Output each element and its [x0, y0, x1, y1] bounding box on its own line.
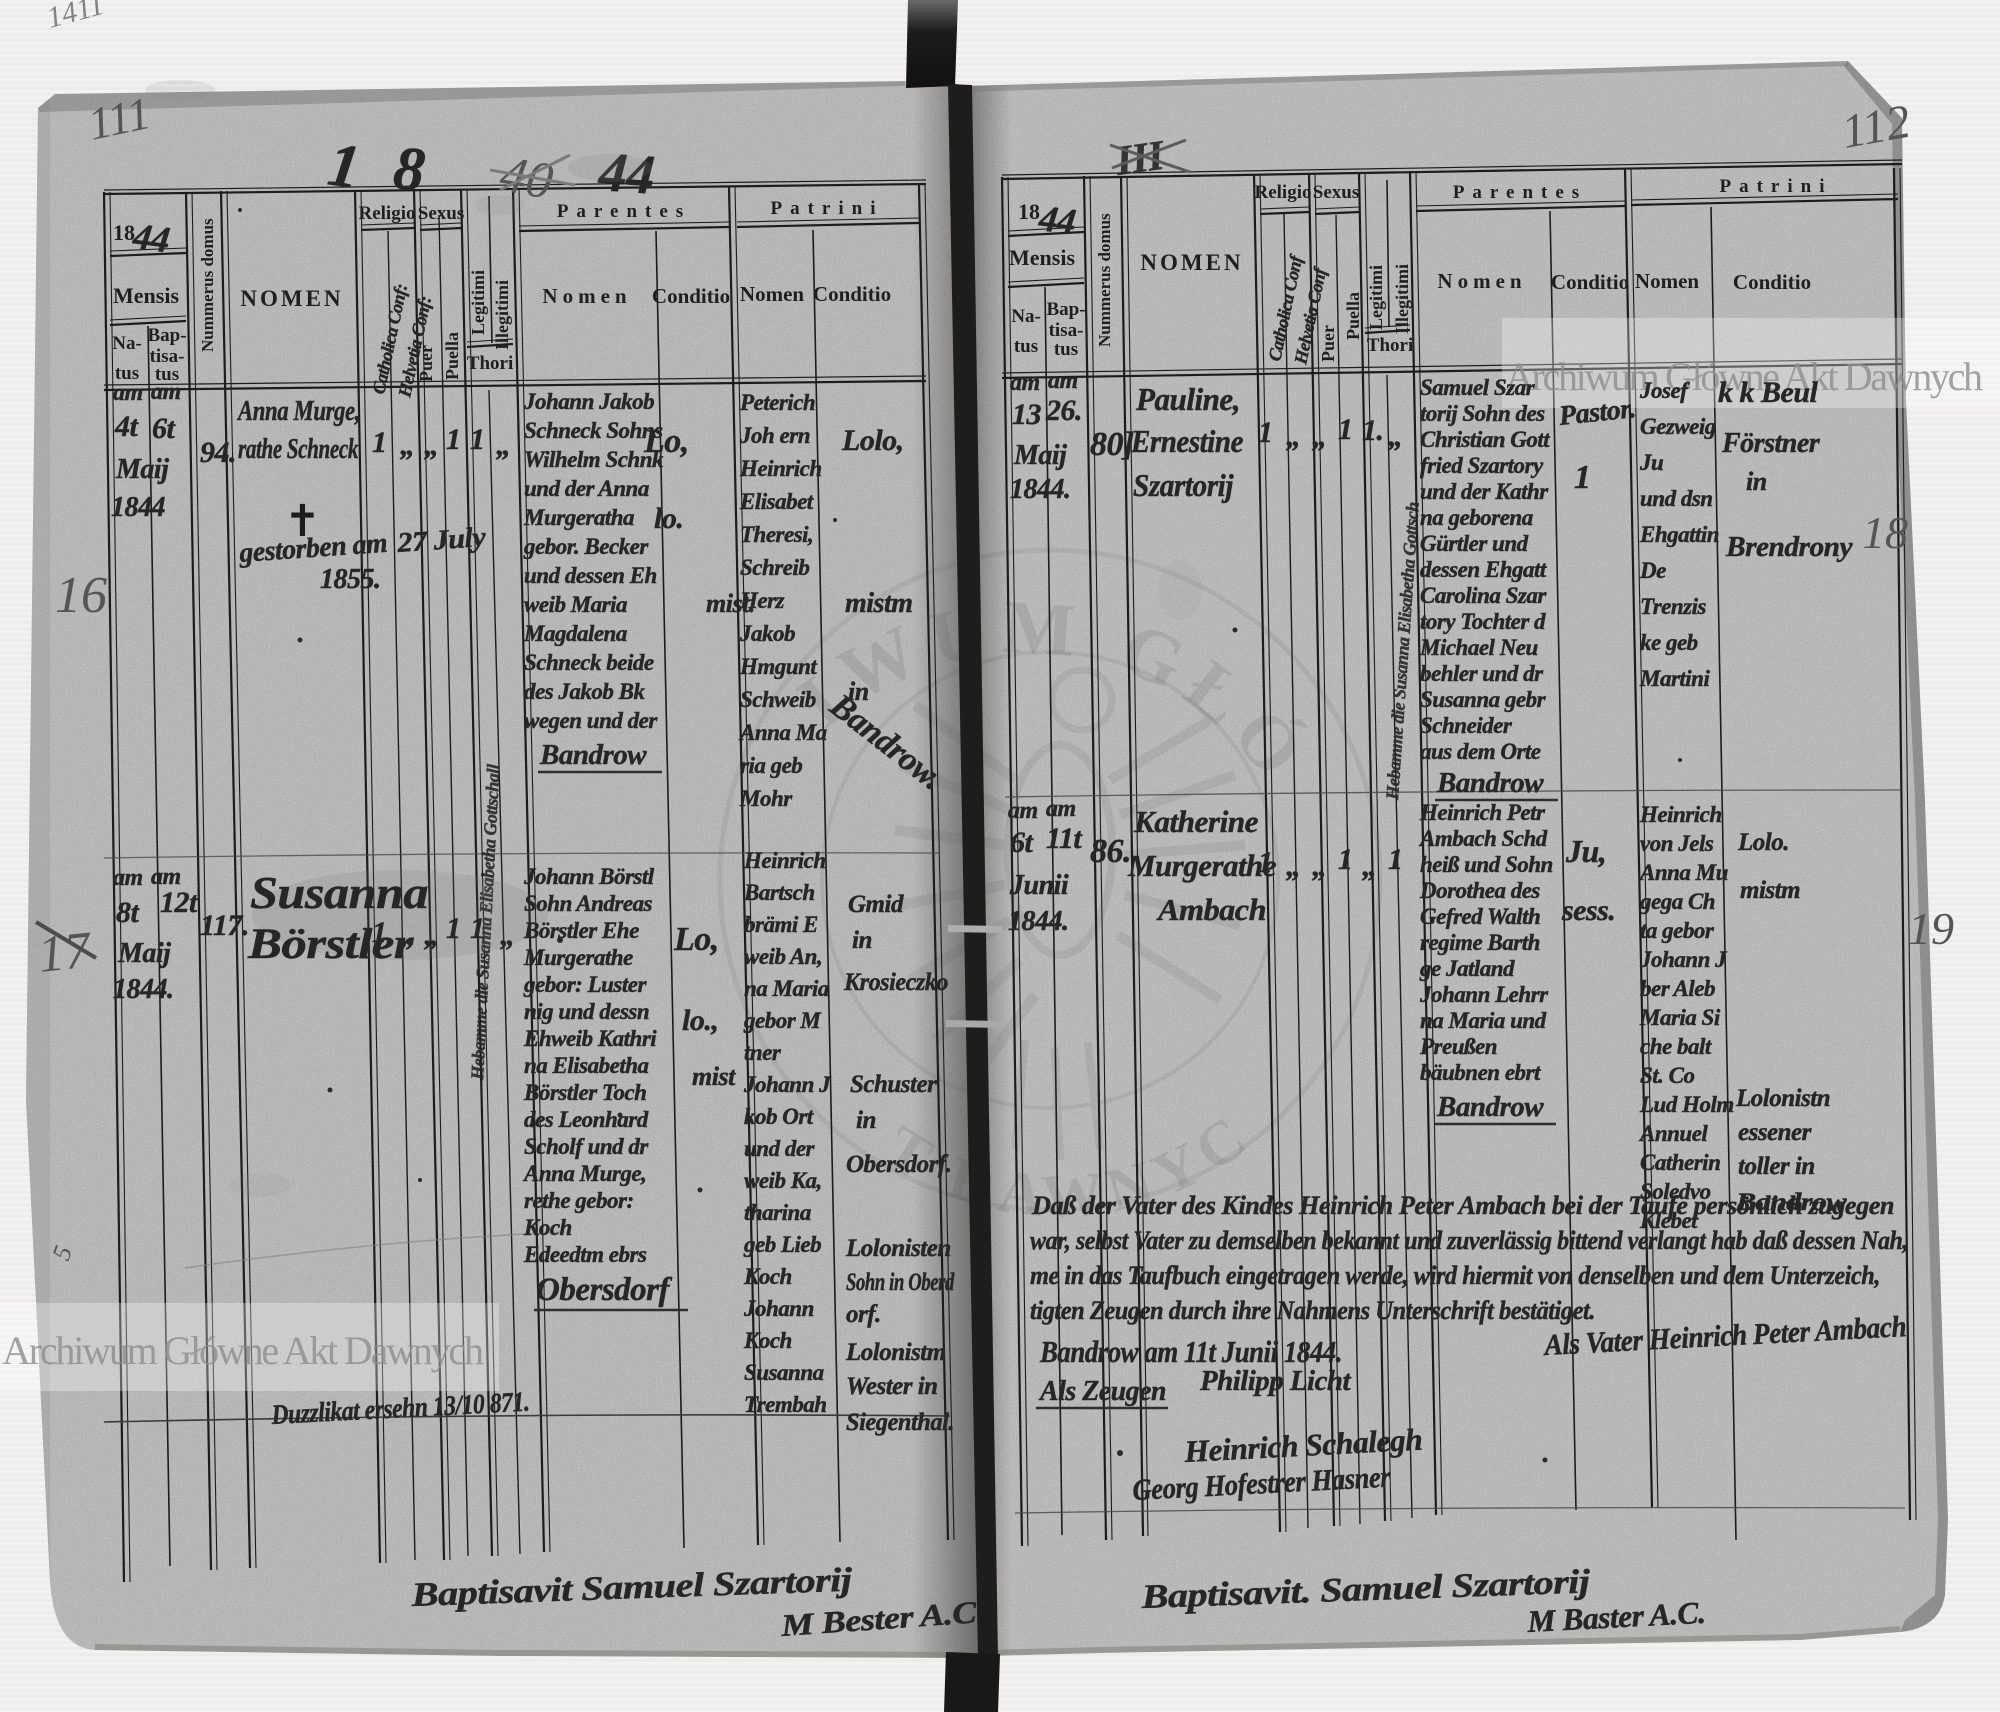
svg-text:Nomen: Nomen [740, 282, 804, 306]
svg-text:Theresi,: Theresi, [740, 522, 813, 547]
svg-text:Schneck Sohns: Schneck Sohns [524, 418, 663, 443]
svg-text:Gezweig: Gezweig [1640, 414, 1716, 439]
svg-text:Trembah: Trembah [744, 1392, 827, 1417]
svg-text:tner: tner [744, 1040, 782, 1065]
svg-text:„: „ [1312, 850, 1327, 883]
svg-text:Sexus: Sexus [418, 203, 464, 224]
svg-text:ria geb: ria geb [740, 753, 802, 778]
svg-text:Anna Mu: Anna Mu [1638, 860, 1729, 885]
svg-text:torij Sohn des: torij Sohn des [1420, 401, 1545, 426]
svg-text:Daß der Vater des Kindes Heinr: Daß der Vater des Kindes Heinrich Peter … [1031, 1191, 1894, 1220]
svg-text:Heinrich: Heinrich [739, 456, 822, 481]
svg-text:1: 1 [1338, 413, 1353, 446]
svg-text:nig und dessn: nig und dessn [524, 999, 649, 1024]
svg-text:Magdalena: Magdalena [523, 621, 627, 646]
svg-text:Conditio: Conditio [1733, 270, 1811, 294]
svg-text:regime Barth: regime Barth [1420, 930, 1540, 955]
svg-text:mist: mist [692, 1062, 736, 1091]
svg-text:Samuel Szar: Samuel Szar [1420, 375, 1536, 400]
svg-text:Johann Jakob: Johann Jakob [523, 389, 654, 414]
svg-text:und der: und der [744, 1136, 816, 1161]
svg-text:heiß und Sohn: heiß und Sohn [1420, 852, 1553, 877]
svg-text:mistm: mistm [1740, 877, 1800, 904]
svg-text:Puer: Puer [1318, 325, 1338, 362]
svg-text:1: 1 [1388, 843, 1403, 876]
svg-text:gebor: Luster: gebor: Luster [523, 972, 647, 997]
svg-text:1: 1 [1258, 846, 1273, 879]
svg-text:11t: 11t [1046, 822, 1083, 855]
svg-text:in: in [1746, 467, 1767, 496]
svg-text:Heinrich Petr: Heinrich Petr [1419, 800, 1546, 825]
svg-text:27 July: 27 July [395, 522, 487, 559]
svg-text:Religio: Religio [1255, 182, 1312, 203]
svg-text:Schneider: Schneider [1420, 713, 1513, 738]
svg-text:Herz: Herz [739, 588, 785, 613]
svg-text:dessen Ehgatt: dessen Ehgatt [1420, 557, 1547, 582]
svg-text:Krosieczko: Krosieczko [843, 969, 948, 996]
svg-text:Thori: Thori [1367, 335, 1413, 356]
svg-text:Philipp Licht: Philipp Licht [1199, 1365, 1351, 1397]
svg-text:Bandrow: Bandrow [1436, 1091, 1544, 1123]
svg-text:Scholf und dr: Scholf und dr [524, 1134, 649, 1159]
svg-text:1.: 1. [1362, 414, 1384, 447]
svg-text:behler und dr: behler und dr [1420, 661, 1544, 686]
svg-text:des Jakob Bk: des Jakob Bk [524, 679, 646, 704]
svg-text:1: 1 [1258, 416, 1273, 449]
svg-text:Lo,: Lo, [673, 921, 719, 958]
svg-text:Legitimi: Legitimi [1366, 265, 1386, 330]
svg-text:„: „ [424, 429, 439, 462]
svg-text:12t: 12t [160, 886, 199, 919]
svg-text:wegen und der: wegen und der [524, 708, 658, 733]
svg-text:„: „ [400, 919, 415, 952]
svg-text:Nomen: Nomen [542, 284, 631, 308]
svg-text:Elisabet: Elisabet [739, 489, 814, 514]
svg-text:Christian Gott: Christian Gott [1420, 427, 1550, 452]
svg-text:Sohn Andreas: Sohn Andreas [524, 891, 653, 916]
svg-text:am: am [1048, 368, 1078, 394]
svg-text:„: „ [1286, 850, 1301, 883]
svg-text:„: „ [1388, 420, 1403, 453]
svg-text:Lolo,: Lolo, [841, 424, 904, 457]
svg-text:und dessen Eh: und dessen Eh [524, 563, 657, 588]
svg-text:fried Szartory: fried Szartory [1420, 453, 1544, 478]
svg-text:Schreib: Schreib [740, 555, 809, 580]
svg-text:Susanna: Susanna [744, 1360, 824, 1385]
svg-text:weib Maria: weib Maria [524, 592, 627, 617]
svg-text:Bartsch: Bartsch [743, 880, 815, 905]
svg-text:lo.,: lo., [682, 1004, 718, 1037]
svg-text:Katherine: Katherine [1133, 804, 1259, 839]
svg-text:Ehgattin: Ehgattin [1639, 522, 1719, 547]
svg-text:Maij: Maij [115, 454, 169, 485]
svg-text:Conditio: Conditio [652, 284, 730, 308]
svg-text:Illegitimi: Illegitimi [1392, 264, 1412, 334]
svg-text:Gmid: Gmid [848, 891, 904, 918]
svg-text:Maij: Maij [117, 938, 171, 969]
svg-text:Szartorij: Szartorij [1133, 467, 1234, 503]
svg-text:1844.: 1844. [113, 974, 174, 1005]
svg-text:St. Co: St. Co [1640, 1063, 1695, 1088]
svg-text:Thori: Thori [467, 353, 513, 374]
svg-text:Schweib: Schweib [740, 687, 816, 712]
svg-text:19: 19 [1908, 903, 1954, 954]
svg-text:Nummerus domus: Nummerus domus [1095, 213, 1114, 347]
svg-text:Mensis: Mensis [1009, 245, 1075, 270]
svg-text:k k Beul: k k Beul [1718, 376, 1819, 409]
svg-text:tus: tus [1054, 339, 1078, 360]
svg-text:Lo,: Lo, [643, 423, 689, 460]
svg-text:1: 1 [446, 912, 461, 945]
svg-text:ge Jatland: ge Jatland [1419, 956, 1515, 981]
svg-text:Lolonistn: Lolonistn [1735, 1085, 1830, 1112]
svg-text:na geborena: na geborena [1420, 505, 1533, 530]
svg-text:Peterich: Peterich [739, 390, 815, 415]
svg-text:Ambach Schd: Ambach Schd [1418, 826, 1548, 851]
svg-text:8: 8 [391, 134, 428, 204]
svg-text:1: 1 [470, 423, 485, 456]
svg-text:am: am [1010, 370, 1040, 396]
svg-text:me in das Taufbuch eingetragen: me in das Taufbuch eingetragen werde, wi… [1030, 1261, 1880, 1290]
svg-text:„: „ [500, 919, 515, 952]
svg-text:Johann J: Johann J [743, 1072, 832, 1097]
svg-text:Heinrich: Heinrich [1639, 802, 1722, 827]
svg-text:„: „ [1312, 420, 1327, 453]
svg-text:Heinrich: Heinrich [743, 848, 826, 873]
svg-text:Na-: Na- [1011, 306, 1041, 327]
svg-text:6t: 6t [152, 412, 177, 445]
svg-text:Koch: Koch [743, 1264, 792, 1289]
svg-text:Hmgunt: Hmgunt [739, 654, 817, 679]
svg-text:18: 18 [113, 220, 135, 245]
svg-text:aus dem Orte: aus dem Orte [1420, 739, 1541, 764]
svg-text:6t: 6t [1010, 826, 1035, 859]
svg-text:Schneck beide: Schneck beide [524, 650, 654, 675]
svg-text:tus: tus [1014, 336, 1038, 357]
svg-text:Maij: Maij [1013, 440, 1067, 471]
svg-text:na Elisabetha: na Elisabetha [524, 1053, 649, 1078]
svg-text:des Leonhard: des Leonhard [524, 1107, 649, 1132]
svg-text:Maria Si: Maria Si [1639, 1005, 1721, 1030]
svg-text:Johann Börstl: Johann Börstl [523, 864, 655, 889]
svg-text:Koch: Koch [523, 1215, 572, 1240]
svg-text:18: 18 [1018, 199, 1040, 224]
svg-text:Börstler Ehe: Börstler Ehe [523, 918, 639, 943]
svg-text:112: 112 [1838, 95, 1915, 159]
svg-text:Na-: Na- [112, 333, 142, 354]
svg-text:Michael Neu: Michael Neu [1419, 635, 1539, 660]
svg-text:rathe Schneck: rathe Schneck [238, 433, 359, 465]
svg-text:Catherin: Catherin [1640, 1150, 1720, 1175]
svg-text:Legitimi: Legitimi [468, 270, 488, 335]
svg-text:am: am [1046, 796, 1076, 822]
svg-text:bäubnen ebrt: bäubnen ebrt [1420, 1060, 1541, 1085]
svg-text:44: 44 [1036, 198, 1078, 243]
svg-text:Schuster: Schuster [850, 1071, 937, 1098]
svg-text:Murgerathe: Murgerathe [523, 945, 633, 970]
svg-text:1: 1 [1574, 459, 1591, 496]
svg-text:Ambach: Ambach [1156, 892, 1266, 927]
svg-text:Parentes: Parentes [1453, 182, 1587, 203]
svg-text:Bandrow: Bandrow [539, 739, 647, 771]
svg-text:NOMEN: NOMEN [1140, 250, 1243, 275]
svg-text:tigten Zeugen durch ihre Nahme: tigten Zeugen durch ihre Nahmens Untersc… [1030, 1296, 1595, 1325]
svg-text:tisa-: tisa- [1049, 320, 1084, 341]
svg-text:1844.: 1844. [1008, 906, 1069, 937]
svg-text:und dsn: und dsn [1640, 486, 1713, 511]
svg-text:war, selbst Vater zu demselben: war, selbst Vater zu demselben bekannt u… [1030, 1226, 1908, 1255]
svg-text:Illegitimi: Illegitimi [492, 280, 512, 350]
svg-text:Gürtler und: Gürtler und [1420, 531, 1529, 556]
svg-text:„: „ [424, 919, 439, 952]
svg-text:16: 16 [55, 567, 107, 624]
svg-text:Obersdorf: Obersdorf [536, 1272, 673, 1308]
svg-text:Bandrow: Bandrow [1436, 767, 1544, 799]
svg-text:tory Tochter d: tory Tochter d [1420, 609, 1546, 634]
svg-text:Lolo.: Lolo. [1737, 829, 1789, 856]
svg-text:Preußen: Preußen [1419, 1034, 1497, 1059]
svg-text:am: am [113, 865, 143, 891]
svg-text:1: 1 [446, 423, 461, 456]
svg-text:1844: 1844 [111, 492, 166, 523]
svg-text:Ju,: Ju, [1565, 833, 1606, 869]
svg-text:brämi E: brämi E [744, 912, 818, 937]
svg-text:Nummerus domus: Nummerus domus [198, 218, 217, 352]
svg-text:Puella: Puella [442, 332, 462, 380]
svg-text:tharina: tharina [744, 1200, 811, 1225]
svg-text:gebor. Becker: gebor. Becker [523, 534, 649, 559]
svg-text:am: am [151, 379, 181, 405]
svg-text:De: De [1639, 558, 1666, 583]
svg-text:Bandrow am 11t Junii 1844.: Bandrow am 11t Junii 1844. [1039, 1334, 1342, 1369]
svg-text:am: am [151, 864, 181, 890]
svg-text:Trenzis: Trenzis [1640, 594, 1706, 619]
svg-text:26.: 26. [1045, 394, 1082, 427]
svg-text:weib Ka,: weib Ka, [744, 1168, 822, 1193]
svg-text:Nomen: Nomen [1437, 269, 1526, 293]
svg-text:Wilhelm Schnk: Wilhelm Schnk [524, 447, 664, 472]
svg-text:von Jels: von Jels [1640, 831, 1714, 856]
svg-text:Johann J: Johann J [1639, 947, 1728, 972]
svg-text:Brendrony: Brendrony [1725, 532, 1853, 563]
svg-text:mistm: mistm [845, 588, 913, 619]
svg-text:86.: 86. [1090, 833, 1131, 870]
svg-text:Lolonisten: Lolonisten [845, 1235, 951, 1262]
svg-text:Puella: Puella [1343, 292, 1363, 340]
svg-text:Johann Lehrr: Johann Lehrr [1419, 982, 1549, 1007]
svg-text:Siegenthal.: Siegenthal. [846, 1409, 954, 1436]
svg-text:Anna Ma: Anna Ma [738, 720, 827, 745]
svg-text:„: „ [496, 429, 511, 462]
svg-text:Patrini: Patrini [1720, 176, 1833, 197]
svg-text:1844.: 1844. [1010, 474, 1071, 505]
svg-text:Susanna gebr: Susanna gebr [1420, 687, 1547, 712]
svg-text:117.: 117. [200, 909, 249, 942]
svg-text:ke geb: ke geb [1640, 630, 1698, 655]
svg-text:in: in [852, 927, 872, 954]
svg-text:toller in: toller in [1738, 1153, 1815, 1180]
svg-text:rethe gebor:: rethe gebor: [524, 1188, 634, 1213]
svg-text:gebor M: gebor M [743, 1008, 822, 1033]
svg-text:Conditio: Conditio [1551, 270, 1629, 294]
svg-text:Sexus: Sexus [1313, 182, 1359, 203]
svg-text:Ernestine: Ernestine [1130, 423, 1243, 459]
svg-text:Koch: Koch [743, 1328, 792, 1353]
svg-text:na Maria: na Maria [744, 976, 829, 1001]
svg-text:Jakob: Jakob [739, 621, 795, 646]
svg-text:na Maria und: na Maria und [1420, 1008, 1547, 1033]
svg-text:Bap-: Bap- [1046, 299, 1085, 320]
svg-text:orf.: orf. [846, 1301, 881, 1328]
svg-text:Sohn in Oberd: Sohn in Oberd [846, 1269, 955, 1296]
svg-text:Annuel: Annuel [1638, 1121, 1708, 1146]
svg-text:Archiwum Główne Akt Dawnych: Archiwum Główne Akt Dawnych [2, 1328, 484, 1373]
svg-text:Börstler: Börstler [247, 921, 415, 968]
svg-text:Martini: Martini [1639, 666, 1710, 691]
svg-text:Mohr: Mohr [739, 786, 793, 811]
svg-text:Dorothea des: Dorothea des [1419, 878, 1540, 903]
svg-text:gega Ch: gega Ch [1639, 889, 1715, 914]
svg-text:che balt: che balt [1640, 1034, 1712, 1059]
svg-text:Bap-: Bap- [147, 325, 186, 346]
svg-text:Joh ern: Joh ern [739, 423, 810, 448]
svg-text:44: 44 [130, 216, 172, 261]
svg-text:ber Aleb: ber Aleb [1640, 976, 1715, 1001]
svg-text:Carolina Szar: Carolina Szar [1420, 583, 1547, 608]
svg-text:„: „ [400, 429, 415, 462]
svg-text:13: 13 [1012, 398, 1042, 431]
svg-text:kob Ort: kob Ort [744, 1104, 814, 1129]
svg-text:Edeedtm ebrs: Edeedtm ebrs [523, 1242, 647, 1267]
svg-text:geb Lieb: geb Lieb [743, 1232, 821, 1257]
svg-text:18: 18 [1862, 507, 1908, 558]
svg-text:1: 1 [372, 916, 387, 949]
svg-text:Patrini: Patrini [771, 198, 884, 219]
svg-text:Pauline,: Pauline, [1135, 381, 1240, 417]
svg-text:sess.: sess. [1561, 894, 1615, 927]
svg-text:Lolonistm: Lolonistm [845, 1339, 946, 1366]
svg-text:1411: 1411 [43, 0, 107, 35]
svg-text:Ehweib Kathri: Ehweib Kathri [523, 1026, 657, 1051]
svg-text:am: am [113, 380, 143, 406]
svg-text:1: 1 [372, 426, 387, 459]
svg-text:am: am [1008, 798, 1038, 824]
svg-text:ta gebor: ta gebor [1640, 918, 1715, 943]
svg-text:Gefred Walth: Gefred Walth [1420, 904, 1540, 929]
svg-text:Mensis: Mensis [113, 283, 179, 308]
svg-text:4t: 4t [114, 410, 140, 443]
svg-text:8t: 8t [116, 896, 141, 929]
svg-text:Anna Murge,: Anna Murge, [522, 1161, 646, 1186]
svg-text:NOMEN: NOMEN [240, 286, 343, 311]
svg-text:1855.: 1855. [320, 564, 381, 595]
svg-text:Conditio: Conditio [813, 282, 891, 306]
svg-text:Obersdorf.: Obersdorf. [846, 1151, 951, 1178]
svg-text:Susanna: Susanna [250, 868, 428, 918]
svg-text:und der Kathr: und der Kathr [1420, 479, 1549, 504]
svg-text:Johann: Johann [743, 1296, 814, 1321]
svg-text:Förstner: Förstner [1721, 428, 1821, 459]
svg-text:Nomen: Nomen [1635, 269, 1699, 293]
svg-text:94.: 94. [200, 436, 236, 469]
svg-text:1: 1 [470, 912, 485, 945]
svg-text:1: 1 [1338, 843, 1353, 876]
svg-text:Lud Holm: Lud Holm [1639, 1092, 1734, 1117]
svg-text:und der Anna: und der Anna [524, 476, 649, 501]
svg-text:80]: 80] [1090, 426, 1134, 463]
svg-text:Als Zeugen: Als Zeugen [1038, 1375, 1166, 1407]
svg-text:Murgeratha: Murgeratha [523, 505, 634, 530]
svg-text:Börstler Toch: Börstler Toch [523, 1080, 646, 1105]
svg-text:lo.: lo. [654, 502, 683, 535]
svg-text:Wester in: Wester in [846, 1373, 938, 1400]
svg-text:Josef: Josef [1639, 378, 1690, 403]
svg-text:„: „ [1286, 420, 1301, 453]
svg-text:Ju: Ju [1639, 450, 1664, 475]
svg-text:in: in [856, 1107, 876, 1134]
svg-text:Anna Murge,: Anna Murge, [236, 395, 360, 427]
svg-text:essener: essener [1738, 1119, 1812, 1146]
svg-text:Religio: Religio [359, 203, 416, 224]
svg-text:weib An,: weib An, [744, 944, 822, 969]
svg-text:Murgerathe: Murgerathe [1127, 848, 1277, 883]
svg-text:Junii: Junii [1009, 870, 1069, 901]
svg-text:„: „ [1362, 850, 1377, 883]
